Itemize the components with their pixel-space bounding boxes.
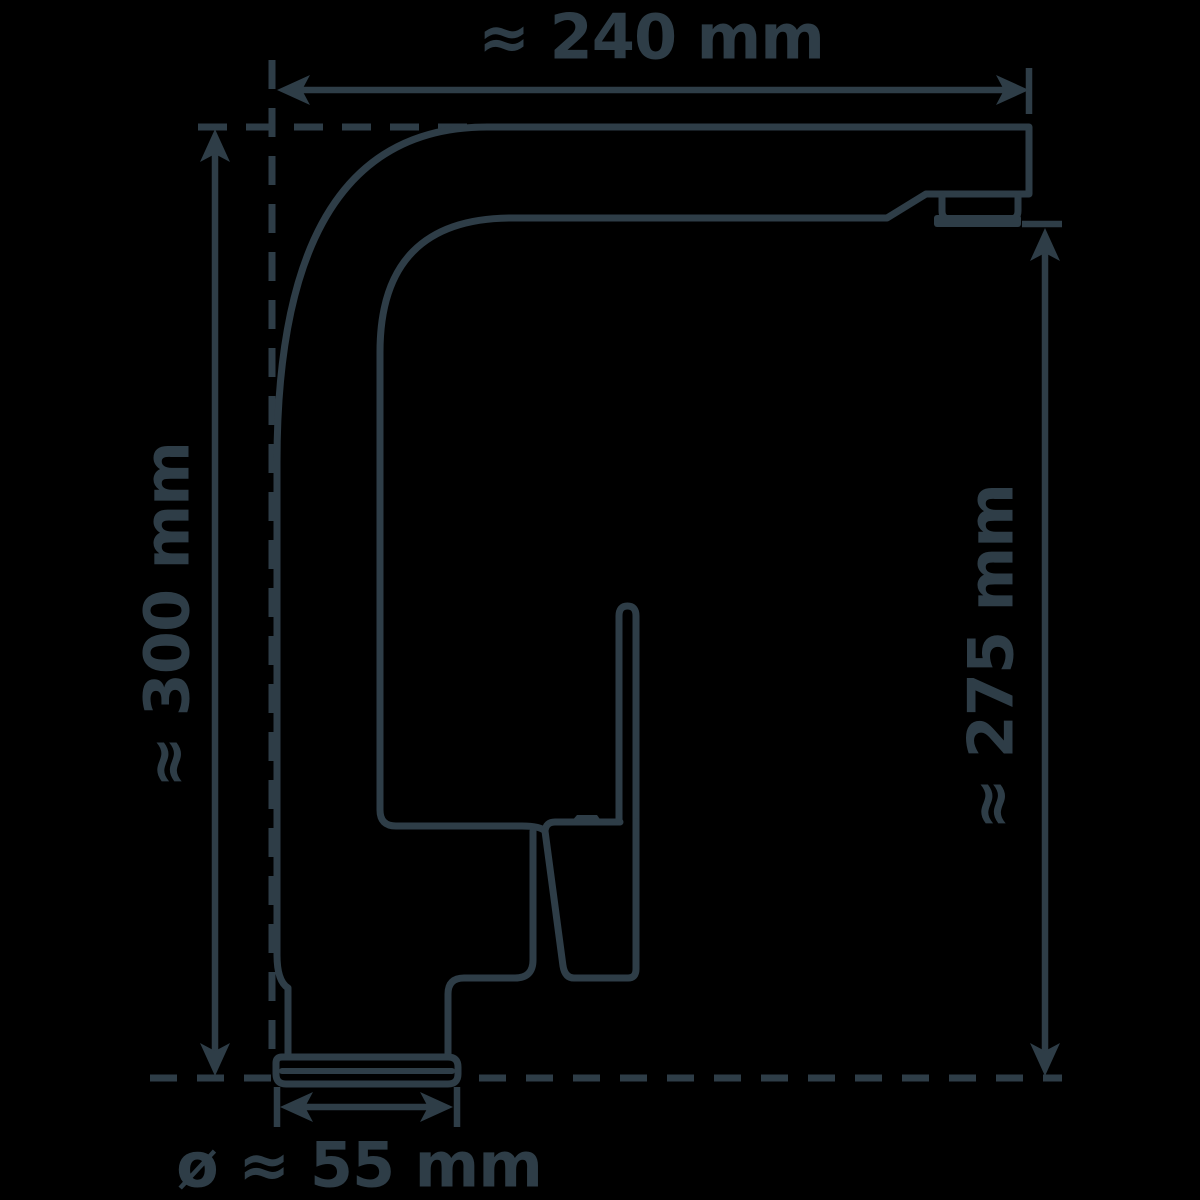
faucet-spout-underside <box>380 194 1017 831</box>
dimension-label-top-width: ≈ 240 mm <box>478 1 824 74</box>
dimension-line-240mm <box>277 68 1029 114</box>
handle-skirt-front <box>545 822 636 978</box>
aerator-face <box>934 215 1021 227</box>
handle-seat-line <box>545 822 620 831</box>
dimension-line-55mm <box>277 1087 457 1127</box>
dimension-label-base-diameter: ø ≈ 55 mm <box>176 1129 542 1200</box>
dimension-label-left-height: ≈ 300 mm <box>131 442 204 788</box>
lever-pivot-tab <box>571 815 602 822</box>
faucet-outer-profile <box>277 127 1029 1057</box>
lever-handle <box>619 606 636 822</box>
handle-skirt-rear-and-neck <box>448 831 533 1057</box>
dimension-label-right-height: ≈ 275 mm <box>955 484 1028 830</box>
dimension-line-275mm <box>1022 224 1062 1076</box>
faucet-dimension-diagram: ≈ 240 mm ≈ 300 mm ≈ 275 mm ø ≈ 55 mm <box>0 0 1200 1200</box>
dimension-line-300mm <box>200 129 230 1076</box>
